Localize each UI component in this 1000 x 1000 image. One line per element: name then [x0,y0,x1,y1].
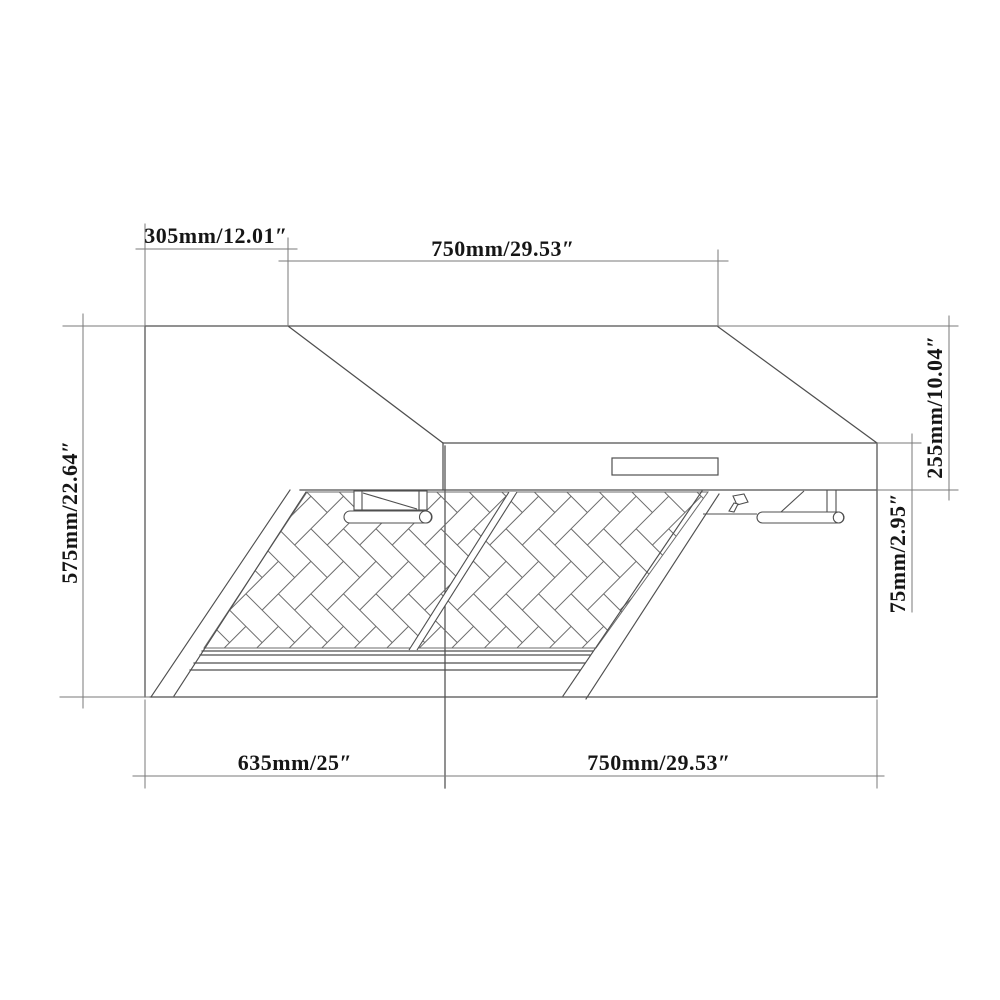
range-hood-dimension-diagram: 305mm/12.01″ 750mm/29.53″ 575mm/22.64″ 2… [0,0,1000,1000]
left-handle-bar [344,511,432,523]
dim-label-left: 575mm/22.64″ [57,440,82,583]
dim-label-right-lower: 75mm/2.95″ [885,493,910,613]
dim-label-right-upper: 255mm/10.04″ [922,335,947,478]
right-handle-bar [757,512,844,523]
dim-label-bottom-left: 635mm/25″ [238,750,352,775]
left-filter-handle [344,491,432,523]
right-handle-bar-cap [833,512,843,523]
control-panel [612,458,718,475]
dim-label-top-center: 750mm/29.53″ [431,236,574,261]
left-handle-bar-cap [420,511,432,523]
dim-label-bottom-right: 750mm/29.53″ [587,750,730,775]
dim-label-top-left: 305mm/12.01″ [144,223,287,248]
